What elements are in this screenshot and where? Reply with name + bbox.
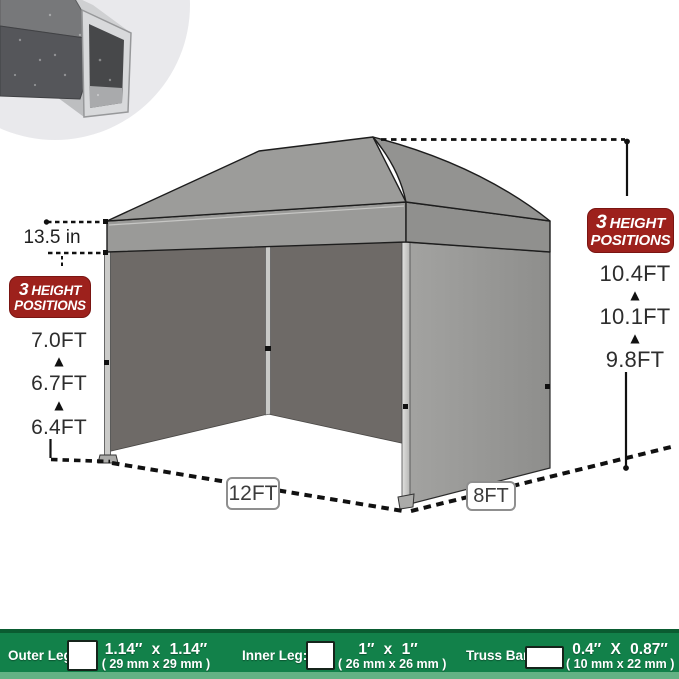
dash-endpoint	[44, 219, 49, 224]
truss-bar-swatch-icon	[525, 646, 564, 669]
height-value: 6.4FT	[20, 416, 98, 440]
left-base-dash	[51, 460, 110, 462]
front-right-leg	[402, 242, 410, 505]
inner-leg-swatch-icon	[306, 641, 335, 670]
valance-height-label: 13.5 in	[12, 227, 92, 249]
frame-spec-bar: Outer Leg: 1.14″ x 1.14″ ( 29 mm x 29 mm…	[0, 629, 679, 679]
height-value: 10.4FT	[592, 261, 678, 287]
badge-word2: POSITIONS	[14, 299, 86, 313]
truss-bar-metric: ( 10 mm x 22 mm )	[566, 658, 674, 671]
outer-leg-metric: ( 29 mm x 29 mm )	[100, 658, 212, 671]
badge-number: 3	[19, 279, 29, 299]
leg-tube-closeup-photo	[0, 0, 200, 152]
badge-line1: 3HEIGHT	[19, 281, 81, 299]
dash-endpoint	[103, 250, 108, 255]
strap-dot-icon	[104, 360, 109, 365]
up-triangle-icon: ▲	[592, 332, 678, 344]
right-sidewall	[406, 242, 550, 505]
truss-bar-label: Truss Bar:	[466, 648, 533, 663]
base-width-label: 12FT	[226, 477, 280, 510]
front-right-foot	[398, 494, 414, 509]
badge-word2: POSITIONS	[591, 233, 671, 248]
back-corner-leg	[266, 246, 271, 415]
back-wall	[107, 242, 406, 452]
spec-bar-body: Outer Leg: 1.14″ x 1.14″ ( 29 mm x 29 mm…	[0, 633, 679, 672]
badge-number: 3	[596, 211, 607, 233]
up-triangle-icon: ▲	[20, 355, 98, 367]
spec-bar-bottom-strip	[0, 672, 679, 679]
badge-word1: HEIGHT	[31, 283, 81, 298]
height-positions-badge-left: 3HEIGHT POSITIONS	[9, 276, 91, 318]
up-triangle-icon: ▲	[20, 399, 98, 411]
inner-leg-label: Inner Leg:	[242, 648, 307, 663]
height-positions-badge-right: 3HEIGHT POSITIONS	[587, 208, 674, 253]
strap-dot-icon	[403, 404, 408, 409]
dash-endpoint	[623, 465, 629, 471]
height-value: 10.1FT	[592, 304, 678, 330]
strap-dot-icon	[265, 346, 271, 351]
height-value: 9.8FT	[592, 347, 678, 373]
front-left-leg	[105, 252, 111, 458]
inner-leg-metric: ( 26 mm x 26 mm )	[338, 658, 438, 671]
truss-bar-size: 0.4″ X 0.87″	[566, 642, 674, 658]
height-value: 6.7FT	[20, 372, 98, 396]
badge-line1: 3HEIGHT	[596, 213, 665, 233]
base-depth-label: 8FT	[466, 481, 516, 511]
inner-leg-size: 1″ x 1″	[338, 642, 438, 658]
product-dimension-diagram: 13.5 in 3HEIGHT POSITIONS 3HEIGHT POSITI…	[0, 0, 679, 679]
badge-word1: HEIGHT	[610, 215, 665, 232]
dash-endpoint	[624, 139, 630, 145]
outer-leg-swatch-icon	[67, 640, 98, 671]
outer-leg-size: 1.14″ x 1.14″	[100, 642, 212, 658]
height-value: 7.0FT	[20, 329, 98, 353]
up-triangle-icon: ▲	[592, 289, 678, 301]
strap-dot-icon	[545, 384, 550, 389]
